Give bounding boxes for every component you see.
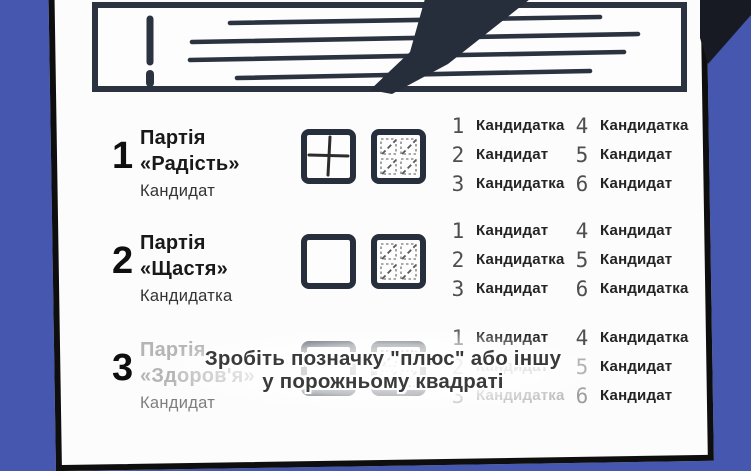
caption-line-1: Зробіть позначку "плюс" або іншу	[158, 347, 608, 370]
caption-line-2: у порожньому квадраті	[158, 370, 608, 393]
stamp-area-checkbox[interactable]	[370, 233, 427, 290]
party-name: Партія «Щастя»	[140, 230, 233, 282]
stamp-area-checkbox[interactable]	[370, 128, 427, 185]
party-number: 3	[112, 347, 132, 390]
card-corner-shadow	[700, 0, 751, 64]
candidate-item: 6Кандидат	[572, 169, 742, 198]
party-info: Партія «Радість» Кандидат	[140, 125, 240, 201]
party-number: 2	[112, 240, 132, 283]
candidate-item: 2Кандидат	[448, 140, 572, 169]
candidate-item: 1Кандидатка	[448, 111, 572, 140]
candidate-item: 4Кандидатка	[572, 111, 742, 140]
candidate-item: 5Кандидат	[572, 245, 742, 274]
subtitle-caption: Зробіть позначку "плюс" або іншу у порож…	[158, 347, 608, 393]
party-row-1: 1 Партія «Радість» Кандидат	[100, 105, 714, 207]
party-candidate-label: Кандидатка	[140, 287, 233, 306]
ballot-header-illustration	[92, 2, 692, 94]
party-candidate-label: Кандидат	[140, 394, 255, 413]
ballot-instruction-frame: 1 Партія «Радість» Кандидат	[0, 0, 751, 422]
party-number: 1	[112, 135, 132, 178]
party-name: Партія «Радість»	[140, 125, 240, 177]
candidate-item: 6Кандидатка	[572, 274, 742, 303]
candidate-item: 4Кандидат	[572, 216, 742, 245]
candidate-list: 1Кандидат 2Кандидатка 3Кандидат 4Кандида…	[448, 216, 742, 303]
candidate-item: 5Кандидат	[572, 140, 742, 169]
vote-checkbox-marked[interactable]	[300, 128, 357, 185]
candidate-list: 1Кандидатка 2Кандидат 3Кандидатка 4Канди…	[448, 111, 742, 198]
candidate-item: 1Кандидат	[448, 216, 572, 245]
party-row-2: 2 Партія «Щастя» Кандидатка	[100, 210, 714, 312]
candidate-item: 3Кандидатка	[448, 169, 572, 198]
party-candidate-label: Кандидат	[140, 182, 240, 201]
candidate-item: 3Кандидат	[448, 274, 572, 303]
vote-checkbox-empty[interactable]	[300, 233, 357, 290]
party-info: Партія «Щастя» Кандидатка	[140, 230, 233, 306]
candidate-item: 2Кандидатка	[448, 245, 572, 274]
